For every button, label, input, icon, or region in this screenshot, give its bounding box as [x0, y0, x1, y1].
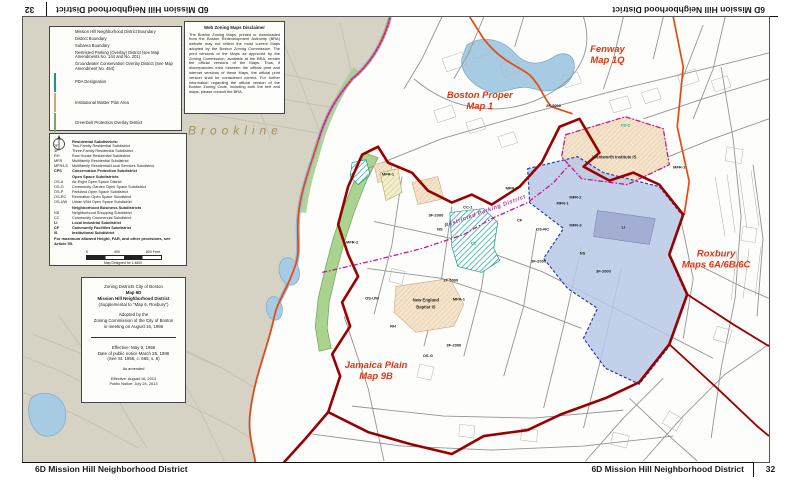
- legend-item: Institutional Master Plan Area: [54, 94, 177, 112]
- zone-label: MFR-1: [382, 172, 395, 177]
- subdistrict-name: Three-Family Residential Subdistrict: [72, 149, 133, 153]
- subdistrict-code: OS-UW: [54, 200, 72, 204]
- green-swatch: [54, 113, 56, 132]
- subdistrict-code: NS: [54, 211, 72, 215]
- zone-label: LI: [622, 225, 626, 230]
- zone-label: OS-G: [423, 353, 433, 358]
- page-number: 32: [753, 464, 788, 474]
- legend-item: CFCommunity Facilities Subdistrict: [54, 226, 182, 230]
- bar-title: 6D Mission Hill Neighborhood District: [612, 5, 765, 15]
- zone-label: NS: [580, 250, 586, 255]
- legend-item: CCCommunity Commercial Subdistrict: [54, 216, 182, 220]
- fenway-label: Map 1Q: [590, 55, 625, 66]
- subdistrict-name: Community Garden Open Space Subdistrict: [72, 185, 146, 189]
- legend-item: MFRMultifamily Residential Subdistrict: [54, 159, 182, 163]
- zone-label: MFR-2: [346, 239, 359, 244]
- subdistrict-name: Air-Right Open Space District: [72, 180, 122, 184]
- legend-item: PDA Designation: [54, 74, 177, 92]
- legend-note: For maximum allowed Height, FAR, and oth…: [54, 237, 182, 247]
- legend-item: LILocal Industrial Subdistrict: [54, 221, 182, 225]
- zone-label: MFR-1: [506, 186, 519, 191]
- subdistrict-code: LI: [54, 221, 72, 225]
- legend-subdistricts-box: Residential Subdistricts:2FTwo-Family Re…: [49, 133, 187, 266]
- footer-running-bar: 6D Mission Hill Neighborhood District 6D…: [22, 462, 788, 478]
- legend-item: District Boundary: [54, 37, 177, 42]
- bar-title: 6D Mission Hill Neighborhood District: [56, 5, 209, 15]
- subdistrict-code: MFR/LS: [54, 164, 72, 168]
- institution-label: New England: [413, 297, 440, 302]
- scale-tick: 0: [86, 250, 88, 254]
- boston-proper-label: Boston Proper: [447, 90, 514, 101]
- legend-item: OS-AAir-Right Open Space District: [54, 180, 182, 184]
- legend-item: RHRow House Residential Subdistrict: [54, 154, 182, 158]
- jamaica-plain-label: Jamaica Plain: [345, 360, 408, 371]
- scale-tick: 400: [114, 250, 120, 254]
- title-block-line: Public Notice: July 24, 2013: [87, 381, 180, 386]
- disclaimer-box: Web Zoning Maps Disclaimer The Boston Zo…: [184, 21, 285, 114]
- legend-overlays-box: Mission Hill Neighborhood District Bound…: [49, 26, 182, 131]
- legend-item: Subarea Boundary: [54, 44, 177, 49]
- bar-title: 6D Mission Hill Neighborhood District: [591, 464, 744, 474]
- subdistrict-name: Multifamily Residential/Local Services S…: [72, 164, 154, 168]
- zone-label: MFR-1: [453, 296, 466, 301]
- institution-label: Wentworth Institute IS: [592, 155, 636, 160]
- subdistrict-code: OS-A: [54, 180, 72, 184]
- legend-item: Restricted Parking (Overlay) District (s…: [54, 51, 177, 61]
- fenway-label: Fenway: [590, 44, 625, 55]
- legend-section-header: Neighborhood Business Subdistricts: [72, 205, 182, 210]
- legend-item: MFR/LSMultifamily Residential/Local Serv…: [54, 164, 182, 168]
- legend-item: OS-UWUrban Wild Open Space Subdistrict: [54, 200, 182, 204]
- institution-label: Baptist IS: [416, 304, 435, 309]
- boston-proper-label: Map 1: [466, 101, 493, 112]
- legend-item: Groundwater Conservation Overlay Distric…: [54, 62, 177, 72]
- legend-item: NSNeighborhood Shopping Subdistrict: [54, 211, 182, 215]
- map-frame: BrooklineBoston ProperMap 1FenwayMap 1QR…: [22, 16, 770, 463]
- subdistrict-code: CF: [54, 226, 72, 230]
- zone-label: CC-2: [621, 123, 631, 128]
- zone-label: OS-RC: [536, 227, 549, 232]
- zone-label: RH: [390, 323, 396, 328]
- legend-item: OS-PParkland Open Space Subdistrict: [54, 190, 182, 194]
- subdistrict-name: Parkland Open Space Subdistrict: [72, 190, 128, 194]
- subdistrict-name: Conservation Protection Subdistrict: [72, 169, 137, 173]
- zone-label: MFR-1: [556, 201, 569, 206]
- legend-item: ISInstitutional Subdistrict: [54, 231, 182, 235]
- zone-label: 3F-2000: [446, 342, 462, 347]
- title-block-line: Zoning Commission of the City of Boston: [87, 318, 180, 324]
- subdistrict-name: Local Industrial Subdistrict: [72, 221, 121, 225]
- disclaimer-body: The Boston Zoning Maps, printed or downl…: [189, 33, 280, 96]
- legend-item: CPSConservation Protection Subdistrict: [54, 169, 182, 173]
- title-block-box: Zoning Districts City of BostonMap 6DMis…: [81, 277, 186, 403]
- zoning-map-page: 6D Mission Hill Neighborhood District 6D…: [0, 0, 800, 483]
- legend-item: Greenbelt Protection Overlay District: [54, 114, 177, 132]
- subdistrict-code: CPS: [54, 169, 72, 173]
- legend-label: Greenbelt Protection Overlay District: [75, 121, 142, 126]
- scale-caption: Map Designed for 1:4800: [80, 261, 166, 265]
- zone-label: 2F-5000: [546, 103, 562, 108]
- zone-label: 3F-2000: [428, 213, 444, 218]
- legend-label: Groundwater Conservation Overlay Distric…: [75, 62, 177, 72]
- legend-item: Mission Hill Neighborhood District Bound…: [54, 30, 177, 35]
- subdistrict-code: OS-P: [54, 190, 72, 194]
- zone-label: CF: [517, 218, 523, 223]
- title-block-line: Mission Hill Neighborhood District: [87, 296, 180, 302]
- peach-swatch: [54, 93, 56, 112]
- legend-item: 2FTwo-Family Residential Subdistrict: [54, 144, 182, 148]
- subdistrict-name: Institutional Subdistrict: [72, 231, 114, 235]
- legend-label: Mission Hill Neighborhood District Bound…: [75, 30, 156, 35]
- zone-label: MFR-1: [673, 165, 686, 170]
- page-number: 32: [12, 5, 47, 15]
- subdistrict-code: OS-RC: [54, 195, 72, 199]
- teal-swatch: [54, 73, 56, 92]
- bar-title: 6D Mission Hill Neighborhood District: [35, 464, 188, 474]
- teal-swatch: [54, 74, 71, 92]
- subdistrict-code: OS-G: [54, 185, 72, 189]
- scale-strip: 0400800 Feet Map Designed for 1:4800: [54, 250, 182, 265]
- title-block-line: (Supplemental to "Map 6, Roxbury"): [87, 302, 180, 308]
- title-block-rule: [91, 337, 176, 338]
- scale-bar: 0400800 Feet Map Designed for 1:4800: [80, 250, 182, 265]
- roxbury-label: Roxbury: [697, 248, 736, 259]
- legend-label: PDA Designation: [75, 80, 106, 85]
- title-block-line: in meeting on August 15, 1996: [87, 324, 180, 330]
- subdistrict-name: Two-Family Residential Subdistrict: [72, 144, 130, 148]
- zone-label: NS: [437, 227, 443, 232]
- legend-item: OS-RCRecreation Open Space Subdistrict: [54, 195, 182, 199]
- peach-swatch: [54, 94, 71, 112]
- disclaimer-title: Web Zoning Maps Disclaimer: [189, 25, 280, 30]
- legend-item: 3FThree-Family Residential Subdistrict: [54, 149, 182, 153]
- subdistrict-name: Urban Wild Open Space Subdistrict: [72, 200, 132, 204]
- subdistrict-name: Multifamily Residential Subdistrict: [72, 159, 129, 163]
- jamaica-plain-label: Map 9B: [359, 371, 393, 382]
- brookline-label: Brookline: [188, 124, 283, 138]
- legend-item: OS-GCommunity Garden Open Space Subdistr…: [54, 185, 182, 189]
- legend-label: District Boundary: [75, 37, 107, 42]
- legend-section-header: Residential Subdistricts:: [72, 139, 182, 144]
- subdistrict-name: Neighborhood Shopping Subdistrict: [72, 211, 132, 215]
- zone-label: 2F-5000: [443, 277, 459, 282]
- subdistrict-code: RH: [54, 154, 72, 158]
- zone-label: MFR-3: [569, 223, 582, 228]
- zone-label: 3F-2000: [531, 258, 547, 263]
- zone-label: MFR-2: [569, 195, 582, 200]
- legend-label: Subarea Boundary: [75, 44, 110, 49]
- zone-label: 3F-2000: [596, 268, 612, 273]
- scale-tick: 800 Feet: [146, 250, 160, 254]
- zone-label: CC-1: [463, 205, 473, 210]
- legend-label: Institutional Master Plan Area: [75, 101, 129, 106]
- bar-rule: [22, 462, 753, 463]
- subdistrict-name: Recreation Open Space Subdistrict: [72, 195, 131, 199]
- top-running-bar: 6D Mission Hill Neighborhood District 6D…: [12, 1, 778, 17]
- subdistrict-code: MFR: [54, 159, 72, 163]
- zone-label: OS-UW: [365, 295, 379, 300]
- zone-label: CC: [471, 240, 477, 245]
- legend-label: Restricted Parking (Overlay) District (s…: [75, 51, 177, 61]
- subdistrict-name: Community Commercial Subdistrict: [72, 216, 131, 220]
- green-swatch: [54, 114, 71, 132]
- roxbury-label: Maps 6A/6B/6C: [682, 259, 751, 270]
- legend-section-header: Open Space Subdistricts: [72, 174, 182, 179]
- subdistrict-code: IS: [54, 231, 72, 235]
- subdistrict-name: Row House Residential Subdistrict: [72, 154, 130, 158]
- subdistrict-name: Community Facilities Subdistrict: [72, 226, 131, 230]
- subdistrict-code: CC: [54, 216, 72, 220]
